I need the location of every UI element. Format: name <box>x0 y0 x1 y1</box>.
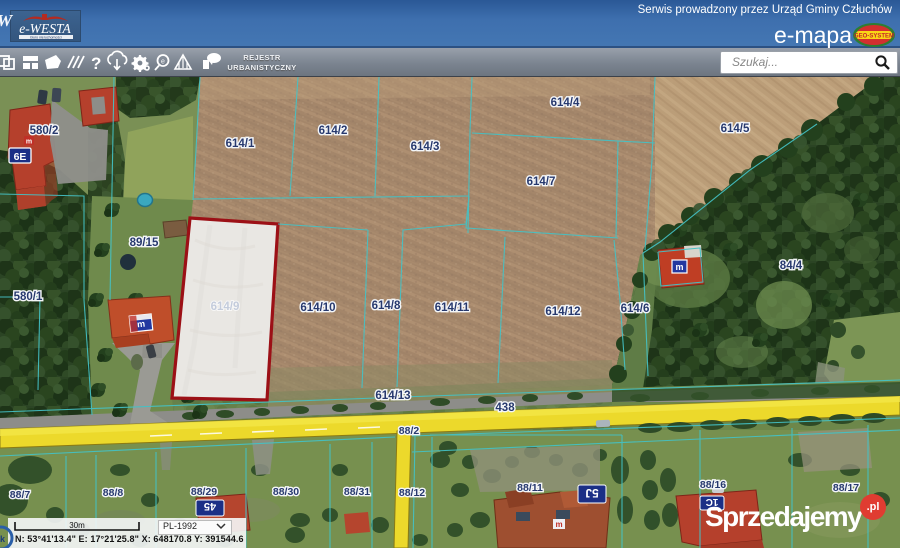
svg-text:88/12: 88/12 <box>399 487 425 499</box>
svg-text:614/10: 614/10 <box>300 302 335 314</box>
svg-text:m: m <box>555 520 562 529</box>
svg-text:89/15: 89/15 <box>130 237 159 249</box>
svg-text:614/11: 614/11 <box>435 302 470 314</box>
svg-text:88/2: 88/2 <box>399 425 420 437</box>
svg-text:45: 45 <box>204 500 216 512</box>
svg-text:88/8: 88/8 <box>103 487 124 499</box>
svg-text:438: 438 <box>495 402 515 414</box>
svg-text:84/4: 84/4 <box>780 260 803 272</box>
svg-text:614/2: 614/2 <box>319 125 348 137</box>
svg-text:88/17: 88/17 <box>833 482 859 494</box>
svg-text:e: e <box>161 59 165 66</box>
svg-text:biuro nieruchomości: biuro nieruchomości <box>30 36 62 40</box>
svg-text:614/4: 614/4 <box>551 97 580 109</box>
svg-text:614/8: 614/8 <box>372 300 401 312</box>
svg-text:614/5: 614/5 <box>721 123 750 135</box>
svg-text:580/1: 580/1 <box>14 291 43 303</box>
svg-text:5J: 5J <box>585 486 598 500</box>
svg-text:88/29: 88/29 <box>191 486 217 498</box>
svg-text:88/30: 88/30 <box>273 486 299 498</box>
svg-text:k: k <box>0 534 6 544</box>
svg-text:e-WESTA: e-WESTA <box>19 21 71 36</box>
svg-text:580/2: 580/2 <box>30 125 59 137</box>
svg-text:614/12: 614/12 <box>545 306 580 318</box>
svg-text:88/16: 88/16 <box>700 479 726 491</box>
svg-text:m: m <box>26 139 32 146</box>
svg-text:6E: 6E <box>14 151 27 163</box>
svg-text:614/1: 614/1 <box>226 138 255 150</box>
svg-text:614/3: 614/3 <box>411 141 440 153</box>
svg-text:614/9: 614/9 <box>211 301 240 313</box>
svg-text:614/13: 614/13 <box>375 390 410 402</box>
svg-text:614/6: 614/6 <box>621 303 650 315</box>
svg-text:88/7: 88/7 <box>10 489 31 501</box>
svg-text:GEO-SYSTEM: GEO-SYSTEM <box>854 34 894 40</box>
svg-text:?: ? <box>91 54 101 73</box>
svg-text:m: m <box>675 262 683 272</box>
svg-text:614/7: 614/7 <box>527 176 556 188</box>
svg-text:88/31: 88/31 <box>344 486 370 498</box>
svg-text:88/11: 88/11 <box>517 482 543 494</box>
svg-text:30m: 30m <box>69 521 85 530</box>
